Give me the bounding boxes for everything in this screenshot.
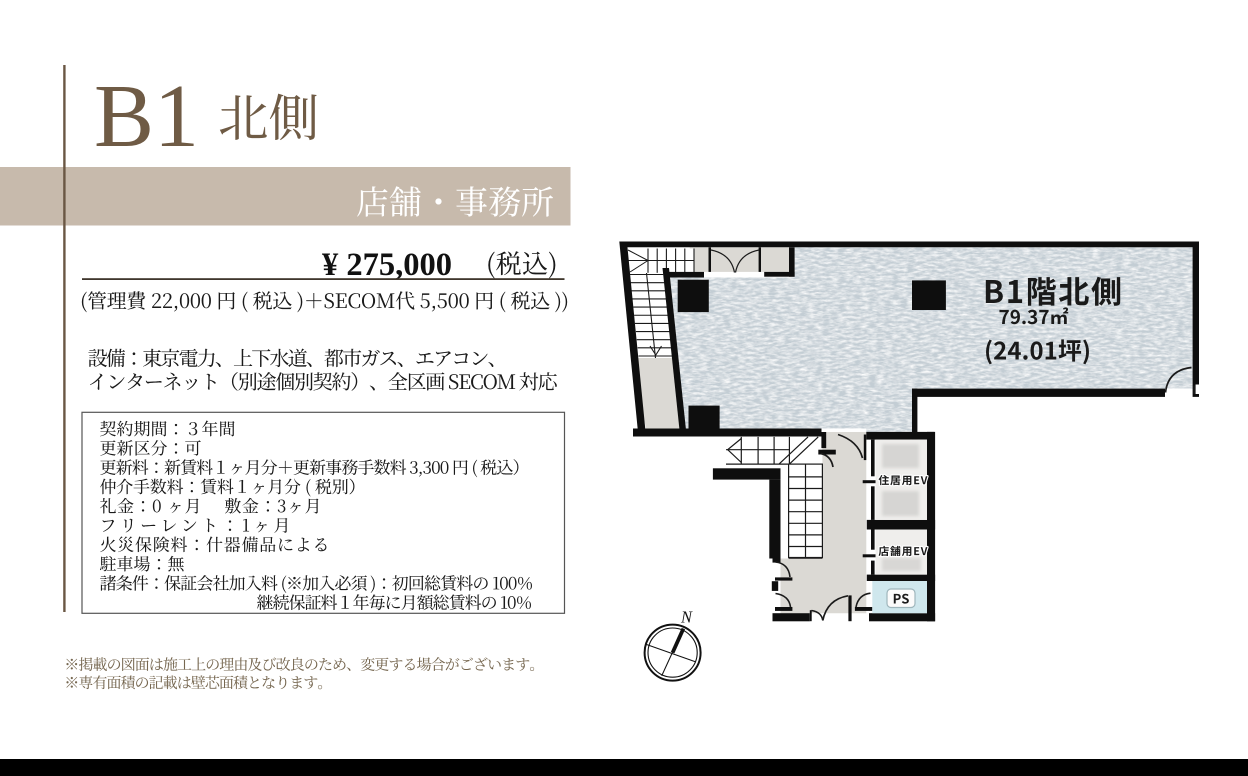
svg-text:B1: B1 <box>94 67 199 166</box>
svg-text:¥ 275,000: ¥ 275,000 <box>322 247 452 283</box>
svg-text:N: N <box>680 608 693 627</box>
